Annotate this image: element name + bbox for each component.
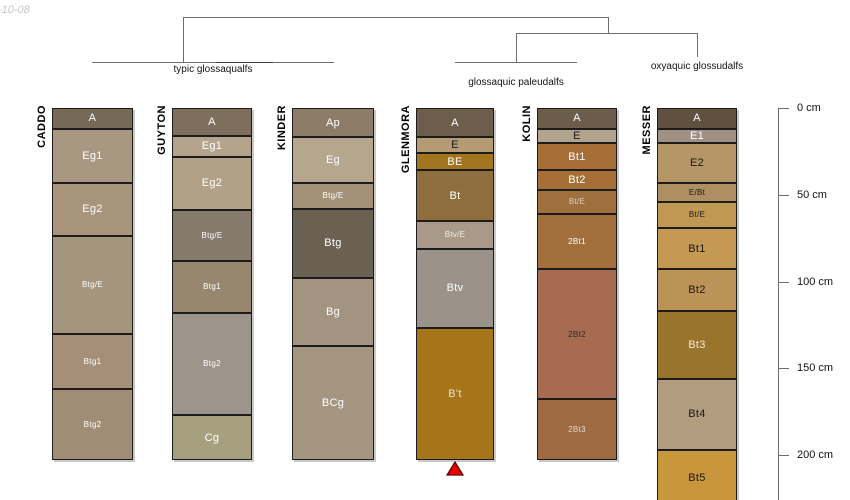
horizon-messer-bt2: Bt2: [657, 269, 737, 311]
horizon-guyton-cg: Cg: [172, 415, 252, 460]
depth-axis-tick: [778, 108, 789, 109]
series-label-messer: MESSER: [640, 105, 654, 154]
series-label-glenmora: GLENMORA: [399, 105, 413, 173]
horizon-messer-a: A: [657, 108, 737, 129]
soil-profile-figure: -10-08 typic glossaqualfs glossaquic pal…: [0, 0, 850, 500]
horizon-guyton-btg1: Btg1: [172, 261, 252, 313]
horizon-kinder-btg: Btg: [292, 209, 374, 278]
timestamp: -10-08: [0, 4, 30, 16]
depth-axis-tick: [778, 455, 789, 456]
series-label-guyton: GUYTON: [155, 105, 169, 155]
horizon-glenmora-a: A: [416, 108, 494, 137]
group-label-oxyaquic-glossudalfs: oxyaquic glossudalfs: [651, 61, 743, 72]
horizon-kolin-bt-e: Bt/E: [537, 190, 617, 214]
series-label-kolin: KOLIN: [520, 105, 534, 142]
group-label-typic-glossaqualfs: typic glossaqualfs: [174, 64, 253, 75]
horizon-kinder-ap: Ap: [292, 108, 374, 137]
horizon-messer-bt3: Bt3: [657, 311, 737, 379]
depth-axis-line: [778, 108, 779, 500]
dendrogram-segment: [516, 33, 697, 34]
profile-column-messer: AE1E2E/BtBt/EBt1Bt2Bt3Bt4Bt5: [657, 108, 737, 500]
horizon-kolin-2bt2: 2Bt2: [537, 269, 617, 399]
horizon-messer-e-bt: E/Bt: [657, 183, 737, 202]
horizon-messer-bt-e: Bt/E: [657, 202, 737, 228]
horizon-caddo-eg1: Eg1: [52, 129, 133, 183]
depth-axis-tick: [778, 282, 789, 283]
horizon-kolin-2bt3: 2Bt3: [537, 399, 617, 460]
horizon-guyton-a: A: [172, 108, 252, 136]
horizon-caddo-btg2: Btg2: [52, 389, 133, 460]
horizon-glenmora-btv-e: Btv/E: [416, 221, 494, 249]
horizon-kolin-bt2: Bt2: [537, 170, 617, 189]
profile-column-guyton: AEg1Eg2Btg/EBtg1Btg2Cg: [172, 108, 252, 460]
horizon-glenmora-btv: Btv: [416, 249, 494, 329]
horizon-caddo-a: A: [52, 108, 133, 129]
horizon-kolin-2bt1: 2Bt1: [537, 214, 617, 270]
dendrogram-segment: [92, 62, 334, 63]
horizon-guyton-eg2: Eg2: [172, 157, 252, 211]
horizon-guyton-btg2: Btg2: [172, 313, 252, 415]
series-label-kinder: KINDER: [275, 105, 289, 150]
horizon-kinder-btg-e: Btg/E: [292, 183, 374, 209]
dendrogram-segment: [608, 17, 609, 33]
depth-tick-label: 150 cm: [797, 362, 833, 374]
horizon-caddo-eg2: Eg2: [52, 183, 133, 237]
horizon-messer-e1: E1: [657, 129, 737, 143]
horizon-glenmora-be: BE: [416, 153, 494, 170]
horizon-guyton-eg1: Eg1: [172, 136, 252, 157]
horizon-guyton-btg-e: Btg/E: [172, 210, 252, 260]
depth-tick-label: 50 cm: [797, 189, 827, 201]
horizon-kinder-bg: Bg: [292, 278, 374, 346]
depth-axis-tick: [778, 368, 789, 369]
horizon-glenmora-b-t: B't: [416, 328, 494, 460]
horizon-kinder-bcg: BCg: [292, 346, 374, 461]
horizon-kolin-a: A: [537, 108, 617, 129]
depth-tick-label: 100 cm: [797, 276, 833, 288]
series-label-caddo: CADDO: [35, 105, 49, 148]
dendrogram-segment: [183, 17, 184, 62]
horizon-caddo-btg1: Btg1: [52, 334, 133, 390]
depth-tick-label: 200 cm: [797, 449, 833, 461]
horizon-glenmora-bt: Bt: [416, 170, 494, 220]
horizon-messer-bt1: Bt1: [657, 228, 737, 270]
horizon-glenmora-e: E: [416, 137, 494, 153]
depth-tick-label: 0 cm: [797, 102, 821, 114]
dendrogram-segment: [455, 62, 577, 63]
dendrogram-segment: [183, 17, 608, 18]
profile-marker-triangle-icon: [446, 461, 464, 481]
horizon-kinder-eg: Eg: [292, 137, 374, 182]
dendrogram-segment: [697, 33, 698, 57]
horizon-kolin-bt1: Bt1: [537, 143, 617, 171]
profile-column-kolin: AEBt1Bt2Bt/E2Bt12Bt22Bt3: [537, 108, 617, 460]
dendrogram-segment: [516, 33, 517, 62]
dendrogram-segment: [216, 62, 273, 63]
depth-axis-tick: [778, 195, 789, 196]
horizon-messer-e2: E2: [657, 143, 737, 183]
group-label-glossaquic-paleudalfs: glossaquic paleudalfs: [468, 77, 564, 88]
horizon-messer-bt5: Bt5: [657, 450, 737, 500]
horizon-kolin-e: E: [537, 129, 617, 143]
profile-column-kinder: ApEgBtg/EBtgBgBCg: [292, 108, 374, 460]
horizon-caddo-btg-e: Btg/E: [52, 236, 133, 333]
horizon-messer-bt4: Bt4: [657, 379, 737, 450]
profile-column-glenmora: AEBEBtBtv/EBtvB't: [416, 108, 494, 460]
profile-column-caddo: AEg1Eg2Btg/EBtg1Btg2: [52, 108, 133, 460]
